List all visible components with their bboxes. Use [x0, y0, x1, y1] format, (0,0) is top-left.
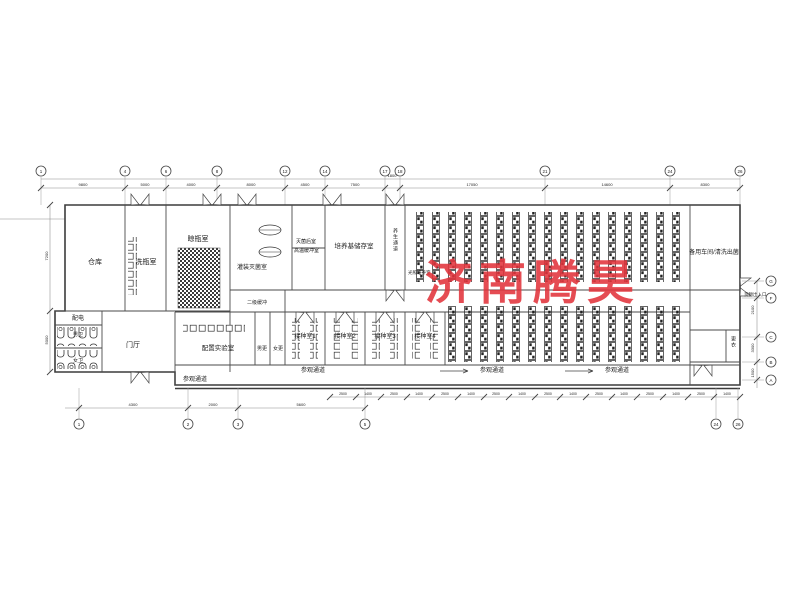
label-cargo-door: 货物出入口: [744, 291, 767, 298]
dim-left: 5000: [44, 335, 49, 345]
dim-top: 5000: [141, 182, 151, 187]
dim-tick: 2500: [544, 392, 552, 396]
label-visit-corridor: 参观通道: [301, 366, 325, 374]
room-label-inoculation1: 接种室1: [294, 332, 316, 340]
grid-bubble-bottom: 5: [364, 422, 367, 427]
corridor-arrows: [440, 369, 593, 373]
dim-tick: 2500: [595, 392, 603, 396]
label-visit-corridor: 参观通道: [480, 366, 504, 374]
room-label-post-sterilization: 灭菌后室: [296, 238, 316, 245]
room-label-bottle-washing: 洗瓶室: [136, 257, 157, 266]
room-label-high-temp-buffer: 高温缓冲室: [294, 247, 319, 254]
dim-tick: 2500: [697, 392, 705, 396]
dim-tick: 1400: [672, 392, 680, 396]
dim-tick: 1400: [723, 392, 731, 396]
grid-bubble-right: A: [769, 378, 772, 383]
room-label-power: 配电: [72, 314, 84, 322]
room-label-womens-change: 女更: [273, 345, 283, 352]
grid-bubble-top: 26: [737, 169, 743, 174]
dim-top: 14600: [601, 182, 613, 187]
watermark: 济南腾昊: [425, 256, 641, 309]
grid-bubble-top: 18: [397, 169, 403, 174]
grid-bubble-top: 1: [40, 169, 43, 174]
dim-tick: 1400: [518, 392, 526, 396]
grid-bubble-right: F: [770, 296, 773, 301]
dim-tick: 2500: [441, 392, 449, 396]
dim-top: 8000: [247, 182, 257, 187]
dim-tick: 2500: [646, 392, 654, 396]
grid-bubble-top: 24: [667, 169, 673, 174]
grid-bubble-right: C: [769, 335, 773, 340]
dim-tick: 1400: [415, 392, 423, 396]
autoclaves: [259, 225, 281, 257]
dim-top: 7500: [351, 182, 361, 187]
dim-tick: 1400: [569, 392, 577, 396]
label-visit-corridor: 参观通道: [183, 375, 207, 383]
grid-bubble-bottom: 24: [713, 422, 719, 427]
dim-tick: 1400: [620, 392, 628, 396]
dim-tick: 1400: [364, 392, 372, 396]
dim-bottom: 5600: [297, 402, 307, 407]
dim-right: 3300: [750, 343, 755, 353]
room-label-prep-lab: 配置实验室: [202, 343, 235, 352]
room-label-warehouse: 仓库: [88, 257, 102, 266]
grid-bubble-bottom: 3: [237, 422, 240, 427]
dim-top: 8300: [701, 182, 711, 187]
dim-right: 2100: [750, 305, 755, 315]
dim-bottom: 4300: [129, 402, 139, 407]
room-label-filling-sterilization: 灌装灭菌室: [237, 263, 267, 271]
room-label-spare-workshop: 备用车间/清洗出菌: [689, 248, 739, 256]
grid-bubble-top: 14: [322, 169, 328, 174]
dim-tick: 2500: [492, 392, 500, 396]
room-label-mens-wc: 男卫: [73, 332, 83, 338]
dim-bottom: 2000: [209, 402, 219, 407]
grid-bubble-top: 21: [542, 169, 548, 174]
room-label-changing: 更衣: [730, 336, 736, 348]
dimension-grid-top: 1 4 6 8 12 14 17 18 21 24 26 9800 5000 4…: [0, 166, 745, 219]
dim-top: 4000: [187, 182, 197, 187]
room-label-medium-storage: 培养基储存室: [335, 241, 375, 250]
dim-top: 9800: [79, 182, 89, 187]
grid-bubble-bottom: 1: [78, 422, 81, 427]
dim-top: 4500: [301, 182, 311, 187]
dim-right: 1500: [750, 368, 755, 378]
grid-bubble-right: G: [769, 279, 773, 284]
dim-left: 7200: [44, 251, 49, 261]
room-label-incubation-corridor: 养生通道: [392, 227, 398, 252]
dimension-bottom: 4300 2000 5600 2500 1400 2500 1400 2500 …: [65, 388, 743, 429]
grid-bubble-top: 4: [124, 169, 127, 174]
dim-tick: 2500: [390, 392, 398, 396]
grid-bubble-right: B: [769, 360, 772, 365]
room-label-womens-wc: 女卫: [73, 357, 83, 364]
dim-tick: 1400: [467, 392, 475, 396]
room-label-inoculation3: 接种室3: [374, 332, 396, 340]
dim-top: 1800: [388, 173, 398, 178]
room-label-secondary-buffer: 二级缓冲: [247, 299, 267, 306]
dim-top: 17050: [466, 182, 478, 187]
grid-bubble-top: 8: [216, 169, 219, 174]
room-label-inoculation2: 接种室2: [334, 332, 356, 340]
grid-bubble-top: 12: [282, 169, 288, 174]
grid-bubble-bottom: 2: [187, 422, 190, 427]
floor-plan-sheet: 1 4 6 8 12 14 17 18 21 24 26 9800 5000 4…: [0, 0, 800, 600]
grid-bubble-top: 6: [165, 169, 168, 174]
grid-bubble-bottom: 26: [735, 422, 741, 427]
room-label-inoculation4: 接种室4: [414, 332, 436, 340]
dim-tick: 2500: [339, 392, 347, 396]
label-visit-corridor: 参观通道: [605, 366, 629, 374]
room-label-bottle-drying: 晾瓶室: [188, 234, 209, 243]
room-label-mens-change: 男更: [257, 346, 267, 352]
dimension-left: 7200 5000: [44, 202, 53, 375]
room-label-lobby: 门厅: [126, 340, 140, 349]
